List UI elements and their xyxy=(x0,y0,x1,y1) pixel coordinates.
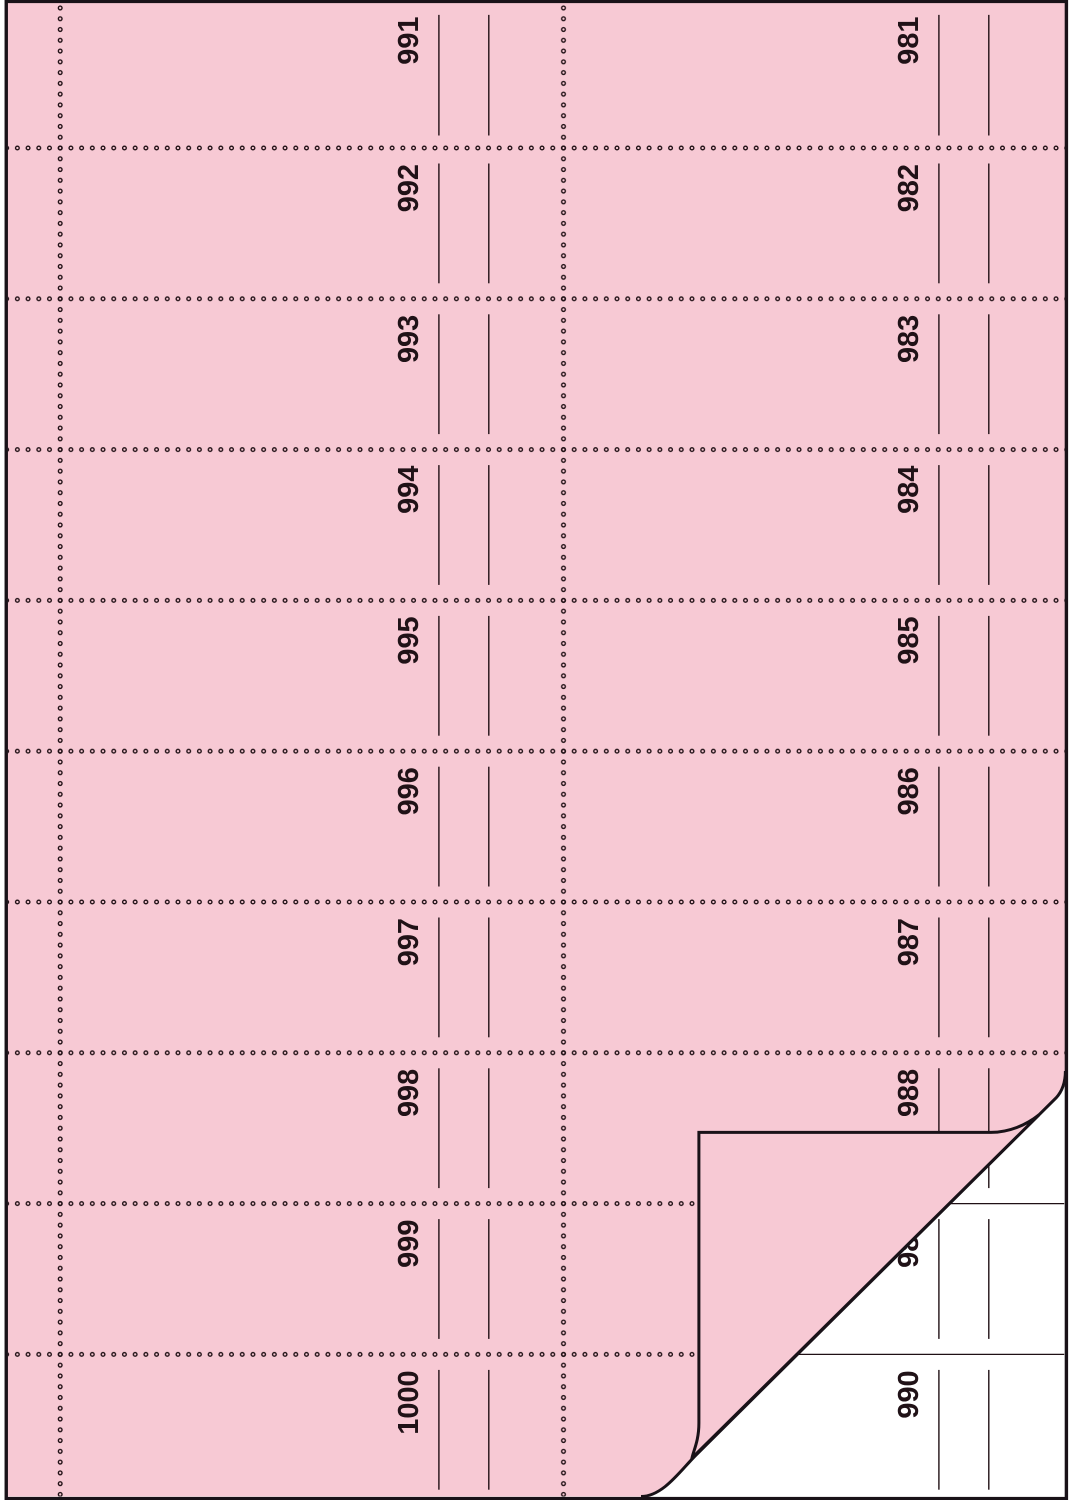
svg-text:988: 988 xyxy=(893,1069,925,1117)
svg-text:981: 981 xyxy=(893,17,925,65)
svg-text:990: 990 xyxy=(893,1370,925,1418)
svg-text:985: 985 xyxy=(893,616,925,664)
svg-text:982: 982 xyxy=(893,164,925,212)
svg-text:991: 991 xyxy=(393,17,425,65)
svg-text:1000: 1000 xyxy=(393,1370,425,1434)
svg-text:998: 998 xyxy=(393,1069,425,1117)
svg-text:996: 996 xyxy=(393,767,425,815)
svg-text:997: 997 xyxy=(393,918,425,966)
svg-text:993: 993 xyxy=(393,315,425,363)
svg-text:995: 995 xyxy=(393,616,425,664)
svg-text:994: 994 xyxy=(393,466,425,514)
svg-text:986: 986 xyxy=(893,767,925,815)
svg-text:983: 983 xyxy=(893,315,925,363)
svg-text:999: 999 xyxy=(393,1220,425,1268)
svg-text:987: 987 xyxy=(893,918,925,966)
svg-text:984: 984 xyxy=(893,466,925,514)
svg-text:992: 992 xyxy=(393,164,425,212)
